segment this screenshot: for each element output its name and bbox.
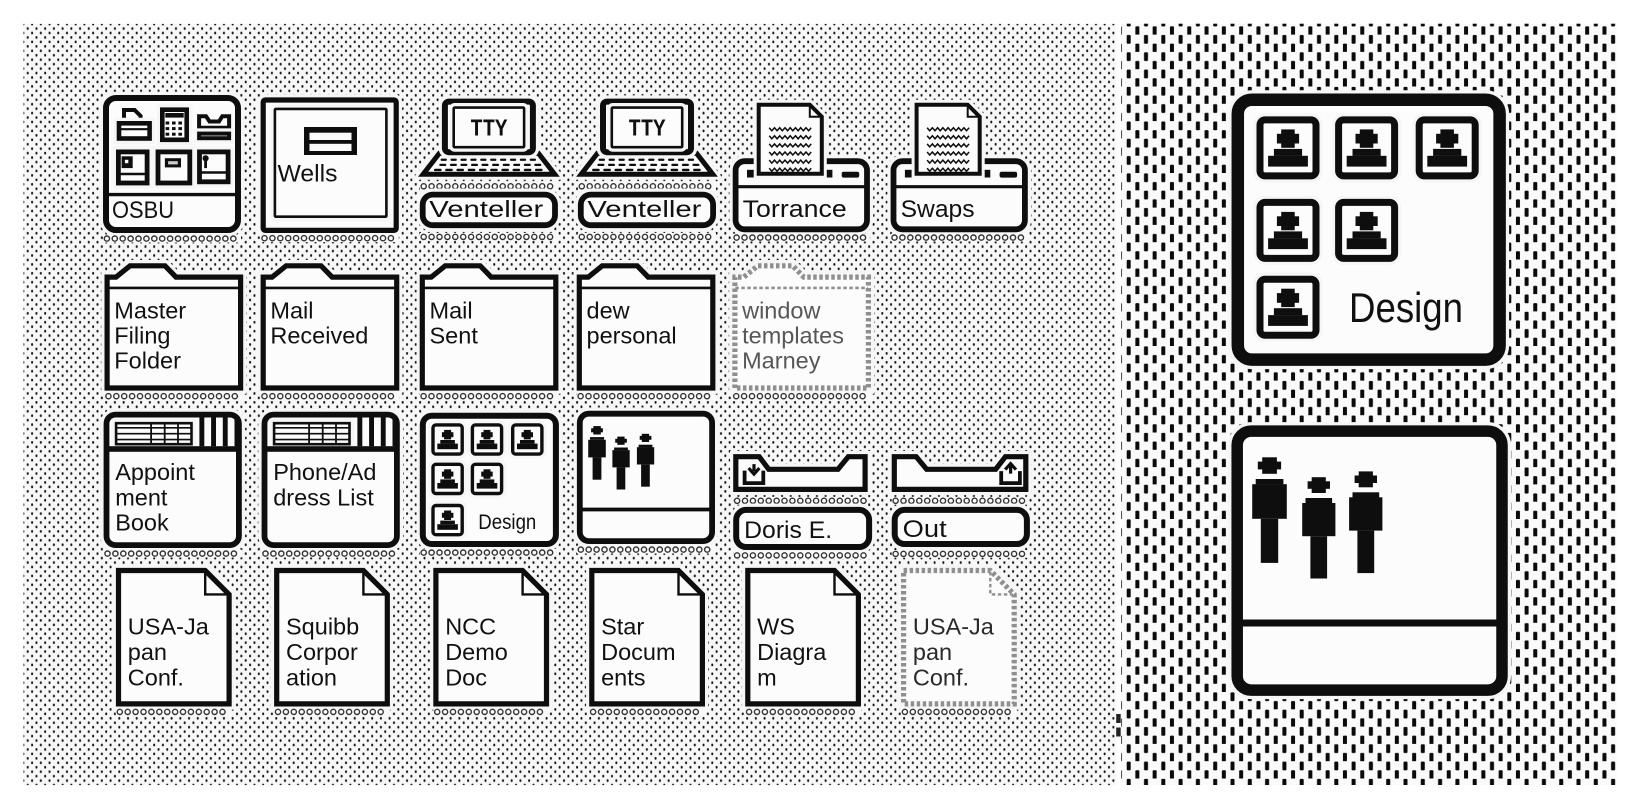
svg-text:Appoint: Appoint [115,459,195,485]
svg-text:Star: Star [601,614,644,640]
svg-text:Venteller: Venteller [587,196,701,222]
svg-text:Conf.: Conf. [128,665,184,691]
svg-text:Out: Out [903,516,947,543]
svg-text:ment: ment [115,484,168,510]
svg-text:window: window [741,298,821,324]
svg-text:Diagra: Diagra [757,639,827,665]
svg-text:USA-Ja: USA-Ja [128,614,210,640]
svg-text:Squibb: Squibb [286,614,359,640]
svg-text:USA-Ja: USA-Ja [913,614,995,640]
svg-text:Phone/Ad: Phone/Ad [273,459,376,485]
svg-text:Mail: Mail [430,298,473,324]
svg-text:Torrance: Torrance [743,196,847,223]
svg-text:Sent: Sent [430,323,479,349]
svg-text:Marney: Marney [742,348,821,374]
svg-text:Conf.: Conf. [913,665,969,691]
svg-text:pan: pan [128,639,167,665]
svg-text:TTY: TTY [470,117,508,144]
svg-text:TTY: TTY [629,117,667,144]
svg-text:Demo: Demo [445,639,508,665]
svg-text:personal: personal [587,323,677,349]
svg-text:Doris E.: Doris E. [744,517,832,544]
svg-text:Folder: Folder [114,348,181,374]
svg-text:Docum: Docum [601,639,675,665]
svg-text:Received: Received [270,323,368,349]
svg-text:Design: Design [1349,284,1463,331]
svg-text:Master: Master [114,298,186,324]
svg-text:NCC: NCC [445,614,496,640]
svg-text:Design: Design [478,511,536,534]
svg-text:templates: templates [742,323,844,349]
svg-text:Venteller: Venteller [429,196,543,222]
svg-text:OSBU: OSBU [112,197,174,224]
svg-text:Filing: Filing [114,323,170,349]
svg-text:ents: ents [601,665,645,691]
svg-text:dress List: dress List [273,484,374,510]
svg-text:Wells: Wells [278,161,338,188]
svg-text:ation: ation [286,665,337,691]
svg-text:Swaps: Swaps [901,196,975,223]
svg-text:Book: Book [115,510,169,536]
svg-text:WS: WS [757,614,795,640]
svg-text:m: m [757,665,777,691]
svg-text:Doc: Doc [445,665,487,691]
svg-text:dew: dew [587,298,631,324]
svg-text:Mail: Mail [270,298,313,324]
svg-text:Corpor: Corpor [286,639,358,665]
svg-text:pan: pan [913,639,952,665]
